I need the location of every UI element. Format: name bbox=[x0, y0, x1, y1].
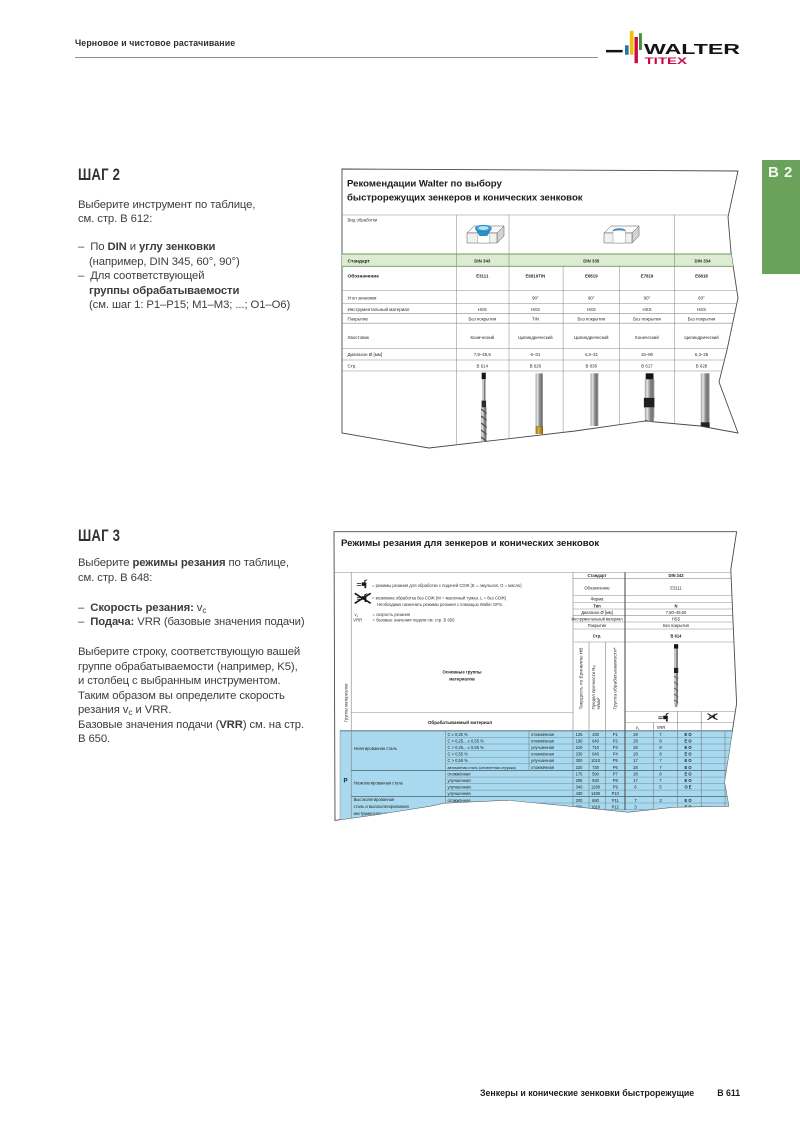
svg-text:Вид обработки: Вид обработки bbox=[348, 218, 378, 223]
svg-text:C > 0,25... ≤ 0,55 %: C > 0,25... ≤ 0,55 % bbox=[448, 745, 485, 750]
svg-text:Форма: Форма bbox=[591, 597, 604, 602]
svg-text:B 628: B 628 bbox=[696, 363, 708, 368]
svg-text:= режимы резания для обработки: = режимы резания для обработки с подачей… bbox=[372, 583, 522, 588]
svg-text:P: P bbox=[344, 778, 348, 785]
svg-text:E O: E O bbox=[684, 798, 692, 803]
svg-text:HSS: HSS bbox=[642, 307, 651, 312]
svg-text:Без покрытия: Без покрытия bbox=[468, 317, 496, 322]
svg-text:Стандарт: Стандарт bbox=[348, 258, 371, 264]
svg-text:HSS: HSS bbox=[587, 307, 596, 312]
svg-text:Н/мм²: Н/мм² bbox=[596, 697, 601, 709]
svg-text:125: 125 bbox=[576, 732, 584, 737]
svg-text:730: 730 bbox=[592, 765, 600, 770]
svg-text:= базовые значения подачи см.: = базовые значения подачи см. стр. B 650 bbox=[373, 618, 456, 623]
svg-text:DIN 343: DIN 343 bbox=[474, 258, 491, 263]
svg-text:Покрытие: Покрытие bbox=[588, 623, 607, 628]
svg-text:1480: 1480 bbox=[591, 791, 601, 796]
svg-text:175: 175 bbox=[576, 771, 584, 776]
svg-text:Обозначение: Обозначение bbox=[584, 586, 610, 591]
svg-text:P4: P4 bbox=[613, 752, 619, 757]
svg-text:6–31: 6–31 bbox=[531, 352, 541, 357]
svg-text:E6819TIN: E6819TIN bbox=[526, 274, 546, 279]
svg-text:P6: P6 bbox=[613, 765, 619, 770]
svg-text:B 614: B 614 bbox=[671, 634, 683, 639]
svg-text:быстрорежущих зенкеров и конич: быстрорежущих зенкеров и конических зенк… bbox=[347, 193, 583, 204]
svg-text:28: 28 bbox=[633, 765, 638, 770]
svg-text:E6819: E6819 bbox=[585, 274, 598, 279]
svg-text:28: 28 bbox=[633, 771, 638, 776]
svg-text:материалов: материалов bbox=[449, 677, 475, 682]
svg-text:340: 340 bbox=[576, 785, 584, 790]
svg-text:Цилиндрический: Цилиндрический bbox=[684, 335, 719, 340]
svg-text:4,3–31: 4,3–31 bbox=[585, 352, 599, 357]
svg-text:Покрытие: Покрытие bbox=[348, 317, 369, 322]
svg-text:Нелегированная сталь: Нелегированная сталь bbox=[354, 746, 397, 751]
svg-text:P8: P8 bbox=[613, 778, 619, 783]
svg-text:HSS: HSS bbox=[531, 307, 540, 312]
svg-text:Инструментальный материал: Инструментальный материал bbox=[348, 306, 410, 312]
svg-text:Основные группы: Основные группы bbox=[442, 670, 481, 675]
svg-text:Стандарт: Стандарт bbox=[587, 573, 606, 578]
svg-text:B 617: B 617 bbox=[641, 363, 653, 368]
svg-text:430: 430 bbox=[576, 791, 584, 796]
svg-text:O E: O E bbox=[684, 785, 691, 790]
svg-text:DIN 335: DIN 335 bbox=[583, 258, 600, 263]
svg-text:Режимы резания для зенкеров и: Режимы резания для зенкеров и конических… bbox=[341, 538, 599, 549]
svg-text:15–80: 15–80 bbox=[641, 352, 654, 357]
svg-text:28: 28 bbox=[633, 738, 638, 743]
svg-text:1010: 1010 bbox=[591, 758, 601, 763]
svg-text:P1: P1 bbox=[613, 732, 619, 737]
svg-text:C > 0,55 %: C > 0,55 % bbox=[448, 752, 469, 757]
svg-text:Стр.: Стр. bbox=[593, 634, 602, 639]
svg-text:улучшенная: улучшенная bbox=[531, 745, 554, 750]
svg-text:6,3–25: 6,3–25 bbox=[695, 352, 709, 357]
svg-text:28: 28 bbox=[633, 732, 638, 737]
svg-text:Без покрытия: Без покрытия bbox=[577, 317, 605, 322]
svg-text:Диапазон Ø [мм]: Диапазон Ø [мм] bbox=[581, 610, 613, 615]
svg-text:60°: 60° bbox=[698, 296, 705, 301]
svg-text:Без покрытия: Без покрытия bbox=[688, 317, 716, 322]
svg-text:C > 0,55 %: C > 0,55 % bbox=[448, 758, 469, 763]
svg-text:26: 26 bbox=[633, 745, 638, 750]
svg-text:680: 680 bbox=[592, 798, 600, 803]
svg-text:300: 300 bbox=[576, 758, 584, 763]
svg-text:автоматная сталь (сегментная с: автоматная сталь (сегментная стружка) bbox=[448, 766, 516, 770]
svg-text:Без покрытия: Без покрытия bbox=[663, 623, 689, 628]
svg-text:7,80–49,60: 7,80–49,60 bbox=[666, 610, 687, 615]
svg-text:DIN 334: DIN 334 bbox=[694, 258, 711, 263]
svg-text:TIN: TIN bbox=[532, 317, 539, 322]
svg-text:90°: 90° bbox=[588, 296, 595, 301]
svg-text:инструментальная сталь: инструментальная сталь bbox=[354, 811, 401, 816]
svg-text:отожжённая: отожжённая bbox=[448, 771, 471, 776]
svg-text:17: 17 bbox=[633, 778, 638, 783]
svg-text:Цилиндрический: Цилиндрический bbox=[574, 335, 609, 340]
svg-text:Конический: Конический bbox=[635, 335, 659, 340]
svg-text:220: 220 bbox=[576, 765, 584, 770]
svg-text:E O: E O bbox=[684, 745, 692, 750]
svg-text:отожжённая: отожжённая bbox=[531, 752, 554, 757]
svg-text:улучшенная: улучшенная bbox=[448, 785, 471, 790]
svg-text:отожжённая: отожжённая bbox=[531, 738, 554, 743]
svg-text:28: 28 bbox=[633, 752, 638, 757]
svg-text:E O: E O bbox=[684, 752, 692, 757]
svg-text:P12: P12 bbox=[612, 804, 620, 809]
svg-text:B 614: B 614 bbox=[477, 363, 489, 368]
svg-text:C > 0,25... ≤ 0,55 %: C > 0,25... ≤ 0,55 % bbox=[448, 738, 485, 743]
svg-text:улучшенная: улучшенная bbox=[448, 791, 471, 796]
svg-text:Инструментальный материал: Инструментальный материал bbox=[572, 616, 624, 621]
svg-text:E O: E O bbox=[684, 738, 692, 743]
svg-text:Конический: Конический bbox=[470, 335, 494, 340]
svg-text:7,8–49,6: 7,8–49,6 bbox=[474, 352, 492, 357]
svg-text:P11: P11 bbox=[612, 798, 620, 803]
svg-text:930: 930 bbox=[592, 778, 600, 783]
svg-text:P5: P5 bbox=[613, 758, 619, 763]
svg-text:Хвостовик: Хвостовик bbox=[348, 335, 370, 340]
svg-text:отожжённая: отожжённая bbox=[448, 804, 471, 809]
svg-text:N: N bbox=[675, 603, 678, 608]
svg-text:640: 640 bbox=[592, 738, 600, 743]
svg-text:E O: E O bbox=[684, 778, 692, 783]
svg-text:HSS: HSS bbox=[478, 307, 487, 312]
svg-text:HSS: HSS bbox=[672, 616, 681, 621]
svg-text:430: 430 bbox=[592, 732, 600, 737]
svg-text:P9: P9 bbox=[613, 785, 619, 790]
svg-text:Тип: Тип bbox=[593, 603, 601, 608]
svg-text:17: 17 bbox=[633, 758, 638, 763]
svg-text:отожжённая: отожжённая bbox=[531, 765, 554, 770]
svg-text:Необходимо назначить режимы ре: Необходимо назначить режимы резания с по… bbox=[377, 602, 503, 607]
svg-text:200: 200 bbox=[576, 798, 584, 803]
svg-text:E6818: E6818 bbox=[695, 274, 708, 279]
svg-text:190: 190 bbox=[576, 738, 584, 743]
svg-text:DIN 343: DIN 343 bbox=[668, 573, 684, 578]
svg-text:E O: E O bbox=[684, 771, 692, 776]
svg-text:P7: P7 bbox=[613, 771, 619, 776]
svg-text:HSS: HSS bbox=[697, 307, 706, 312]
svg-text:Без покрытия: Без покрытия bbox=[633, 317, 661, 322]
svg-text:E3111: E3111 bbox=[476, 274, 489, 279]
svg-text:590: 590 bbox=[592, 771, 600, 776]
svg-text:Обозначение: Обозначение bbox=[348, 273, 380, 280]
svg-text:Обрабатываемый материал: Обрабатываемый материал bbox=[428, 719, 492, 725]
svg-text:= возможна обработка без СОЖ (: = возможна обработка без СОЖ (M = маслян… bbox=[372, 596, 507, 601]
svg-text:E3111: E3111 bbox=[670, 586, 682, 591]
svg-text:Группа обрабатываемости*: Группа обрабатываемости* bbox=[613, 647, 618, 709]
svg-text:P2: P2 bbox=[613, 738, 619, 743]
svg-text:E O: E O bbox=[684, 765, 692, 770]
svg-text:E O: E O bbox=[684, 758, 692, 763]
svg-text:90°: 90° bbox=[644, 296, 651, 301]
svg-text:Стр.: Стр. bbox=[348, 363, 357, 368]
svg-text:Низколегированная сталь: Низколегированная сталь bbox=[354, 781, 403, 786]
svg-text:P3: P3 bbox=[613, 745, 619, 750]
svg-text:90°: 90° bbox=[532, 296, 539, 301]
svg-text:B 636: B 636 bbox=[586, 363, 598, 368]
svg-text:Угол зенковки: Угол зенковки bbox=[348, 296, 377, 301]
svg-text:B 626: B 626 bbox=[530, 363, 542, 368]
svg-text:Группы материалов: Группы материалов bbox=[344, 683, 349, 722]
svg-text:210: 210 bbox=[576, 745, 584, 750]
svg-text:Рекомендации Walter по выбору: Рекомендации Walter по выбору bbox=[347, 179, 502, 190]
svg-text:сталь и высоколегированная: сталь и высоколегированная bbox=[354, 804, 409, 809]
svg-text:640: 640 bbox=[592, 752, 600, 757]
svg-text:Цилиндрический: Цилиндрический bbox=[518, 335, 553, 340]
svg-text:P10: P10 bbox=[612, 791, 620, 796]
svg-text:VRR: VRR bbox=[353, 618, 362, 623]
svg-text:E7819: E7819 bbox=[641, 274, 654, 279]
svg-text:230: 230 bbox=[576, 752, 584, 757]
svg-text:Высоколегированная: Высоколегированная bbox=[354, 797, 395, 802]
svg-text:отожжённая: отожжённая bbox=[531, 732, 554, 737]
svg-text:= скорость резания: = скорость резания bbox=[373, 612, 411, 617]
svg-text:Диапазон Ø [мм]: Диапазон Ø [мм] bbox=[348, 352, 383, 357]
svg-text:285: 285 bbox=[576, 778, 584, 783]
svg-text:VRR: VRR bbox=[657, 725, 666, 730]
svg-text:C ≤ 0,25 %: C ≤ 0,25 % bbox=[448, 732, 469, 737]
svg-text:улучшенная: улучшенная bbox=[531, 758, 554, 763]
svg-text:710: 710 bbox=[592, 745, 600, 750]
svg-text:E O: E O bbox=[684, 732, 692, 737]
svg-text:Твердость по Бринеллю HB: Твердость по Бринеллю HB bbox=[579, 647, 584, 709]
svg-text:1280: 1280 bbox=[591, 785, 601, 790]
svg-text:улучшенная: улучшенная bbox=[448, 778, 471, 783]
